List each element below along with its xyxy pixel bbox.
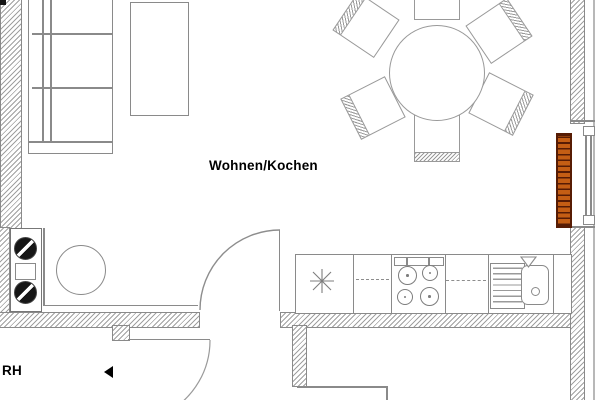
window-frame-end xyxy=(583,126,595,136)
right-wall-lower xyxy=(570,227,585,400)
chair-backrest xyxy=(499,0,533,42)
room-label: Wohnen/Kochen xyxy=(209,158,318,173)
window-frame-end xyxy=(583,215,595,225)
door-leaf-lower xyxy=(128,339,210,341)
chair-backrest xyxy=(332,0,366,36)
window-reveal-bottom xyxy=(570,226,595,228)
dining-chair xyxy=(414,0,460,20)
window-glazing-line xyxy=(590,127,592,222)
burner-icon xyxy=(422,265,438,281)
hotplate-icon xyxy=(14,237,37,260)
sofa-backrest-line xyxy=(50,0,52,141)
bottom-wall-left xyxy=(0,312,200,328)
burner-icon xyxy=(398,266,417,285)
window-reveal-top xyxy=(570,120,595,122)
annotation-label: RH xyxy=(2,363,22,378)
corner-mark xyxy=(0,0,6,5)
hotplate-icon xyxy=(14,281,37,304)
hob-control-box xyxy=(15,263,36,280)
sink-bowl xyxy=(521,265,549,305)
counter-divider xyxy=(553,255,554,313)
kitchen-zone-line xyxy=(43,305,198,307)
burner-icon xyxy=(397,289,413,305)
left-wall-lower xyxy=(0,227,10,315)
sink-drainer xyxy=(490,263,525,309)
chair-backrest xyxy=(340,94,370,140)
sofa-seat-divider xyxy=(32,33,112,35)
dishwasher-dash xyxy=(356,279,389,280)
wall-stub-lower xyxy=(292,325,307,387)
door-swing-arc-lower xyxy=(168,340,210,400)
bottom-wall-right xyxy=(280,312,585,328)
lower-room-line xyxy=(297,386,387,388)
radiator xyxy=(556,133,572,228)
lower-room-line xyxy=(386,386,388,400)
chair-backrest xyxy=(414,152,460,162)
burner-icon xyxy=(420,287,439,306)
cooktop-knob xyxy=(394,257,407,266)
sofa-armrest-line xyxy=(29,141,112,143)
hob-unit xyxy=(10,228,42,312)
sofa-backrest-line xyxy=(42,0,44,141)
cooktop-knob xyxy=(407,257,429,266)
right-wall-upper xyxy=(570,0,585,124)
sofa-seat-divider xyxy=(32,87,112,89)
sink-drain xyxy=(531,287,540,296)
floor-plan: Wohnen/Kochen RH xyxy=(0,0,600,400)
appliance-dash xyxy=(446,280,486,281)
door-swing-arc-upper xyxy=(200,230,280,310)
window-glazing-line xyxy=(585,127,587,222)
chair-backrest xyxy=(504,90,534,136)
door-leaf-upper xyxy=(279,230,281,311)
counter-divider xyxy=(445,255,446,313)
left-arrow-marker-icon xyxy=(104,366,113,378)
counter-divider xyxy=(353,255,354,313)
kitchen-zone-line xyxy=(43,228,45,306)
dining-chair xyxy=(332,0,399,58)
left-wall-upper xyxy=(0,0,22,229)
kitchen-counter xyxy=(295,254,572,314)
dining-table xyxy=(389,25,485,121)
counter-divider xyxy=(488,255,489,313)
round-table xyxy=(56,245,106,295)
exterior-boundary-line xyxy=(593,0,595,400)
coffee-table xyxy=(130,2,189,116)
counter-divider xyxy=(391,255,392,313)
sofa xyxy=(28,0,113,154)
